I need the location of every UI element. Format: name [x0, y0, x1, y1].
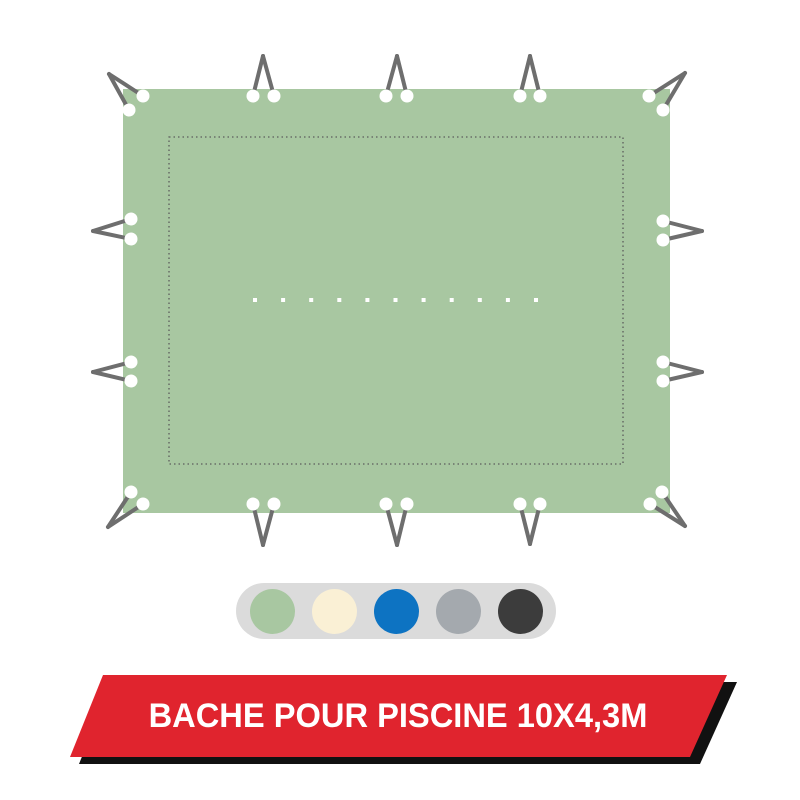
color-swatch-selector: [236, 583, 556, 639]
color-swatch-blue[interactable]: [374, 589, 419, 634]
color-swatch-cream[interactable]: [312, 589, 357, 634]
color-swatch-charcoal[interactable]: [498, 589, 543, 634]
color-swatch-green[interactable]: [250, 589, 295, 634]
color-swatch-gray[interactable]: [436, 589, 481, 634]
product-banner: BACHE POUR PISCINE 10X4,3M: [70, 672, 740, 768]
product-card: BACHE POUR PISCINE 10X4,3M: [0, 0, 800, 800]
banner-title: BACHE POUR PISCINE 10X4,3M: [83, 694, 713, 738]
